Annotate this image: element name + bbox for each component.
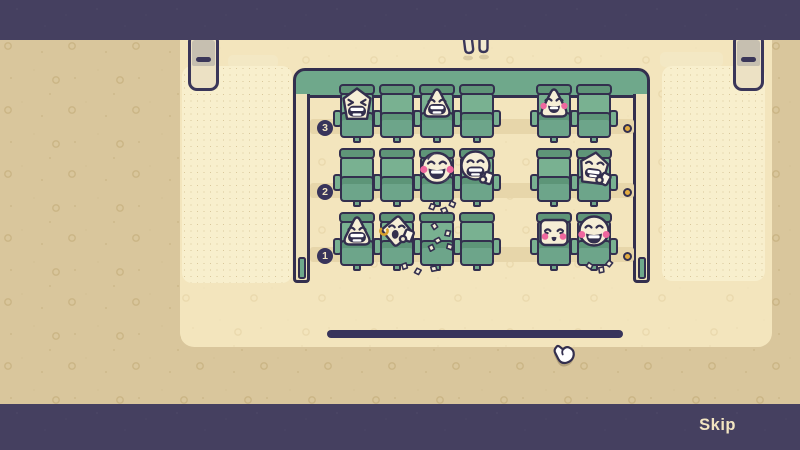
door-window-slot bbox=[741, 57, 756, 62]
character-round-cup-laugh bbox=[457, 149, 497, 195]
seat-row2-2[interactable] bbox=[378, 148, 416, 205]
letterbox-bar-top bbox=[0, 0, 800, 40]
left-aisle-carpet bbox=[182, 66, 292, 283]
door-window-slot bbox=[196, 57, 211, 62]
door-panel bbox=[192, 40, 215, 66]
auditorium-wall-right bbox=[633, 94, 650, 283]
seat-armrest-right bbox=[609, 110, 618, 127]
seat-row1-5[interactable] bbox=[535, 212, 573, 269]
popcorn-crumb bbox=[448, 196, 457, 214]
popcorn-crumb bbox=[605, 255, 614, 273]
seat-row3-5[interactable] bbox=[535, 84, 573, 141]
character-pentagon-grin bbox=[337, 85, 377, 131]
character-triangle-grin bbox=[417, 85, 457, 131]
popcorn-crumb bbox=[585, 257, 594, 275]
auditorium-wall-left bbox=[293, 94, 310, 283]
skip-button[interactable]: Skip bbox=[699, 416, 736, 435]
seat-armrest-right bbox=[492, 238, 501, 255]
seat-row3-1[interactable] bbox=[338, 84, 376, 141]
stage-edge-line bbox=[327, 330, 623, 338]
seat-row3-6[interactable] bbox=[575, 84, 613, 141]
seat-cushion bbox=[577, 112, 611, 138]
seat-armrest-left bbox=[453, 238, 462, 255]
character-pentagon-cup bbox=[574, 149, 614, 195]
popcorn-crumb bbox=[445, 238, 454, 256]
wall-end-cap bbox=[298, 257, 306, 279]
seat-row2-1[interactable] bbox=[338, 148, 376, 205]
hand-pointer-icon bbox=[548, 338, 582, 377]
letterbox-bar-bottom: Skip bbox=[0, 404, 800, 450]
seat-armrest-left bbox=[333, 174, 342, 191]
door-icon bbox=[188, 36, 219, 91]
seat-row3-3[interactable] bbox=[418, 84, 456, 141]
character-square-blush bbox=[534, 213, 574, 259]
auditorium: 321 bbox=[293, 68, 650, 283]
door-mat-right bbox=[660, 52, 723, 67]
gold-ring bbox=[378, 224, 390, 242]
aisle-light-dot bbox=[623, 252, 632, 261]
seat-cushion bbox=[460, 240, 494, 266]
character-ball-blush-laugh bbox=[417, 149, 457, 195]
seat-row2-4[interactable] bbox=[458, 148, 496, 205]
seat-row2-5[interactable] bbox=[535, 148, 573, 205]
row-number-badge: 2 bbox=[317, 184, 333, 200]
popcorn-crumb bbox=[428, 198, 437, 216]
dangling-legs bbox=[456, 36, 496, 67]
popcorn-crumb bbox=[427, 239, 436, 257]
door-panel bbox=[737, 40, 760, 66]
seat-armrest-left bbox=[530, 174, 539, 191]
aisle-light-dot bbox=[623, 188, 632, 197]
seat-row1-4[interactable] bbox=[458, 212, 496, 269]
right-aisle-carpet bbox=[662, 66, 765, 281]
popcorn-crumb bbox=[429, 260, 438, 278]
row-number-badge: 1 bbox=[317, 248, 333, 264]
seat-row3-4[interactable] bbox=[458, 84, 496, 141]
popcorn-crumb bbox=[413, 263, 422, 281]
seat-armrest-right bbox=[492, 110, 501, 127]
seat-cushion bbox=[460, 112, 494, 138]
seat-cushion bbox=[537, 176, 571, 202]
character-triangle-blush bbox=[534, 85, 574, 131]
seat-row2-6[interactable] bbox=[575, 148, 613, 205]
seat-row1-1[interactable] bbox=[338, 212, 376, 269]
seat-cushion bbox=[340, 176, 374, 202]
wall-end-cap bbox=[638, 257, 646, 279]
seat-row3-2[interactable] bbox=[378, 84, 416, 141]
seat-cushion bbox=[380, 112, 414, 138]
character-triangle-grin bbox=[337, 213, 377, 259]
character-round-blush-laugh bbox=[574, 213, 614, 259]
popcorn-crumb bbox=[400, 258, 409, 276]
game-screen: 321 Skip bbox=[0, 0, 800, 450]
door-icon bbox=[733, 36, 764, 91]
seat-cushion bbox=[380, 176, 414, 202]
seat-armrest-left bbox=[373, 174, 382, 191]
row-number-badge: 3 bbox=[317, 120, 333, 136]
aisle-light-dot bbox=[623, 124, 632, 133]
